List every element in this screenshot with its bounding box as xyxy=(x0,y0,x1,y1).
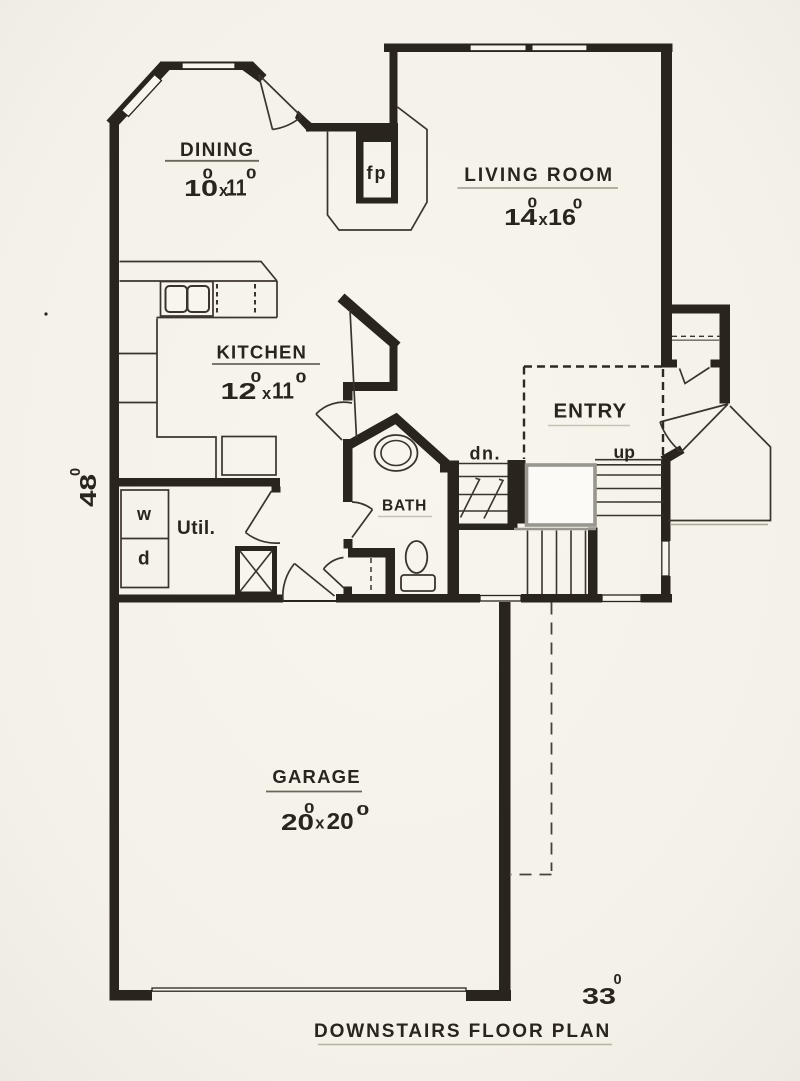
svg-text:KITCHEN: KITCHEN xyxy=(217,341,308,362)
svg-text:16: 16 xyxy=(548,204,576,230)
svg-text:0: 0 xyxy=(614,972,622,988)
svg-text:w: w xyxy=(136,504,152,524)
svg-text:0: 0 xyxy=(251,370,262,386)
svg-text:ENTRY: ENTRY xyxy=(554,400,628,423)
svg-text:0: 0 xyxy=(304,801,315,817)
svg-text:DOWNSTAIRS FLOOR PLAN: DOWNSTAIRS FLOOR PLAN xyxy=(314,1021,611,1042)
svg-text:0: 0 xyxy=(68,468,84,476)
svg-text:0: 0 xyxy=(203,167,214,183)
svg-text:20: 20 xyxy=(327,808,354,834)
svg-text:11: 11 xyxy=(226,175,247,201)
svg-text:dn.: dn. xyxy=(470,444,502,464)
svg-text:GARAGE: GARAGE xyxy=(272,766,360,787)
svg-text:DINING: DINING xyxy=(180,140,254,161)
svg-text:48: 48 xyxy=(75,474,101,507)
svg-text:0: 0 xyxy=(246,167,257,183)
svg-text:x: x xyxy=(315,815,325,833)
svg-text:x: x xyxy=(539,211,549,229)
svg-text:fp: fp xyxy=(367,163,388,183)
svg-text:0: 0 xyxy=(296,371,307,387)
svg-text:x: x xyxy=(262,385,272,403)
svg-text:0: 0 xyxy=(356,803,369,819)
svg-text:LIVING ROOM: LIVING ROOM xyxy=(464,165,614,186)
svg-text:BATH: BATH xyxy=(382,498,427,515)
svg-text:0: 0 xyxy=(573,197,583,213)
svg-text:d: d xyxy=(138,549,150,570)
svg-text:Util.: Util. xyxy=(177,518,215,539)
svg-text:33: 33 xyxy=(582,983,616,1009)
svg-text:up: up xyxy=(614,442,635,462)
svg-text:0: 0 xyxy=(528,195,538,211)
svg-text:11: 11 xyxy=(272,377,294,403)
